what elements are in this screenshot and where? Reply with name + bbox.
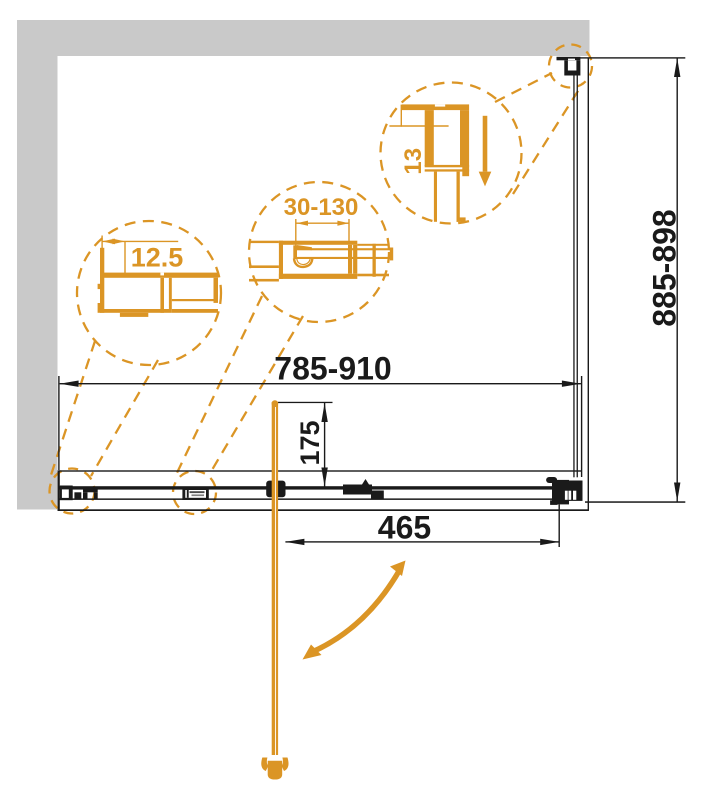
svg-text:30-130: 30-130: [284, 194, 359, 221]
svg-text:12.5: 12.5: [131, 243, 184, 273]
svg-text:13: 13: [400, 148, 427, 175]
svg-text:465: 465: [378, 510, 431, 546]
svg-text:885-898: 885-898: [647, 209, 683, 326]
svg-text:175: 175: [295, 420, 325, 465]
svg-text:785-910: 785-910: [274, 351, 391, 387]
